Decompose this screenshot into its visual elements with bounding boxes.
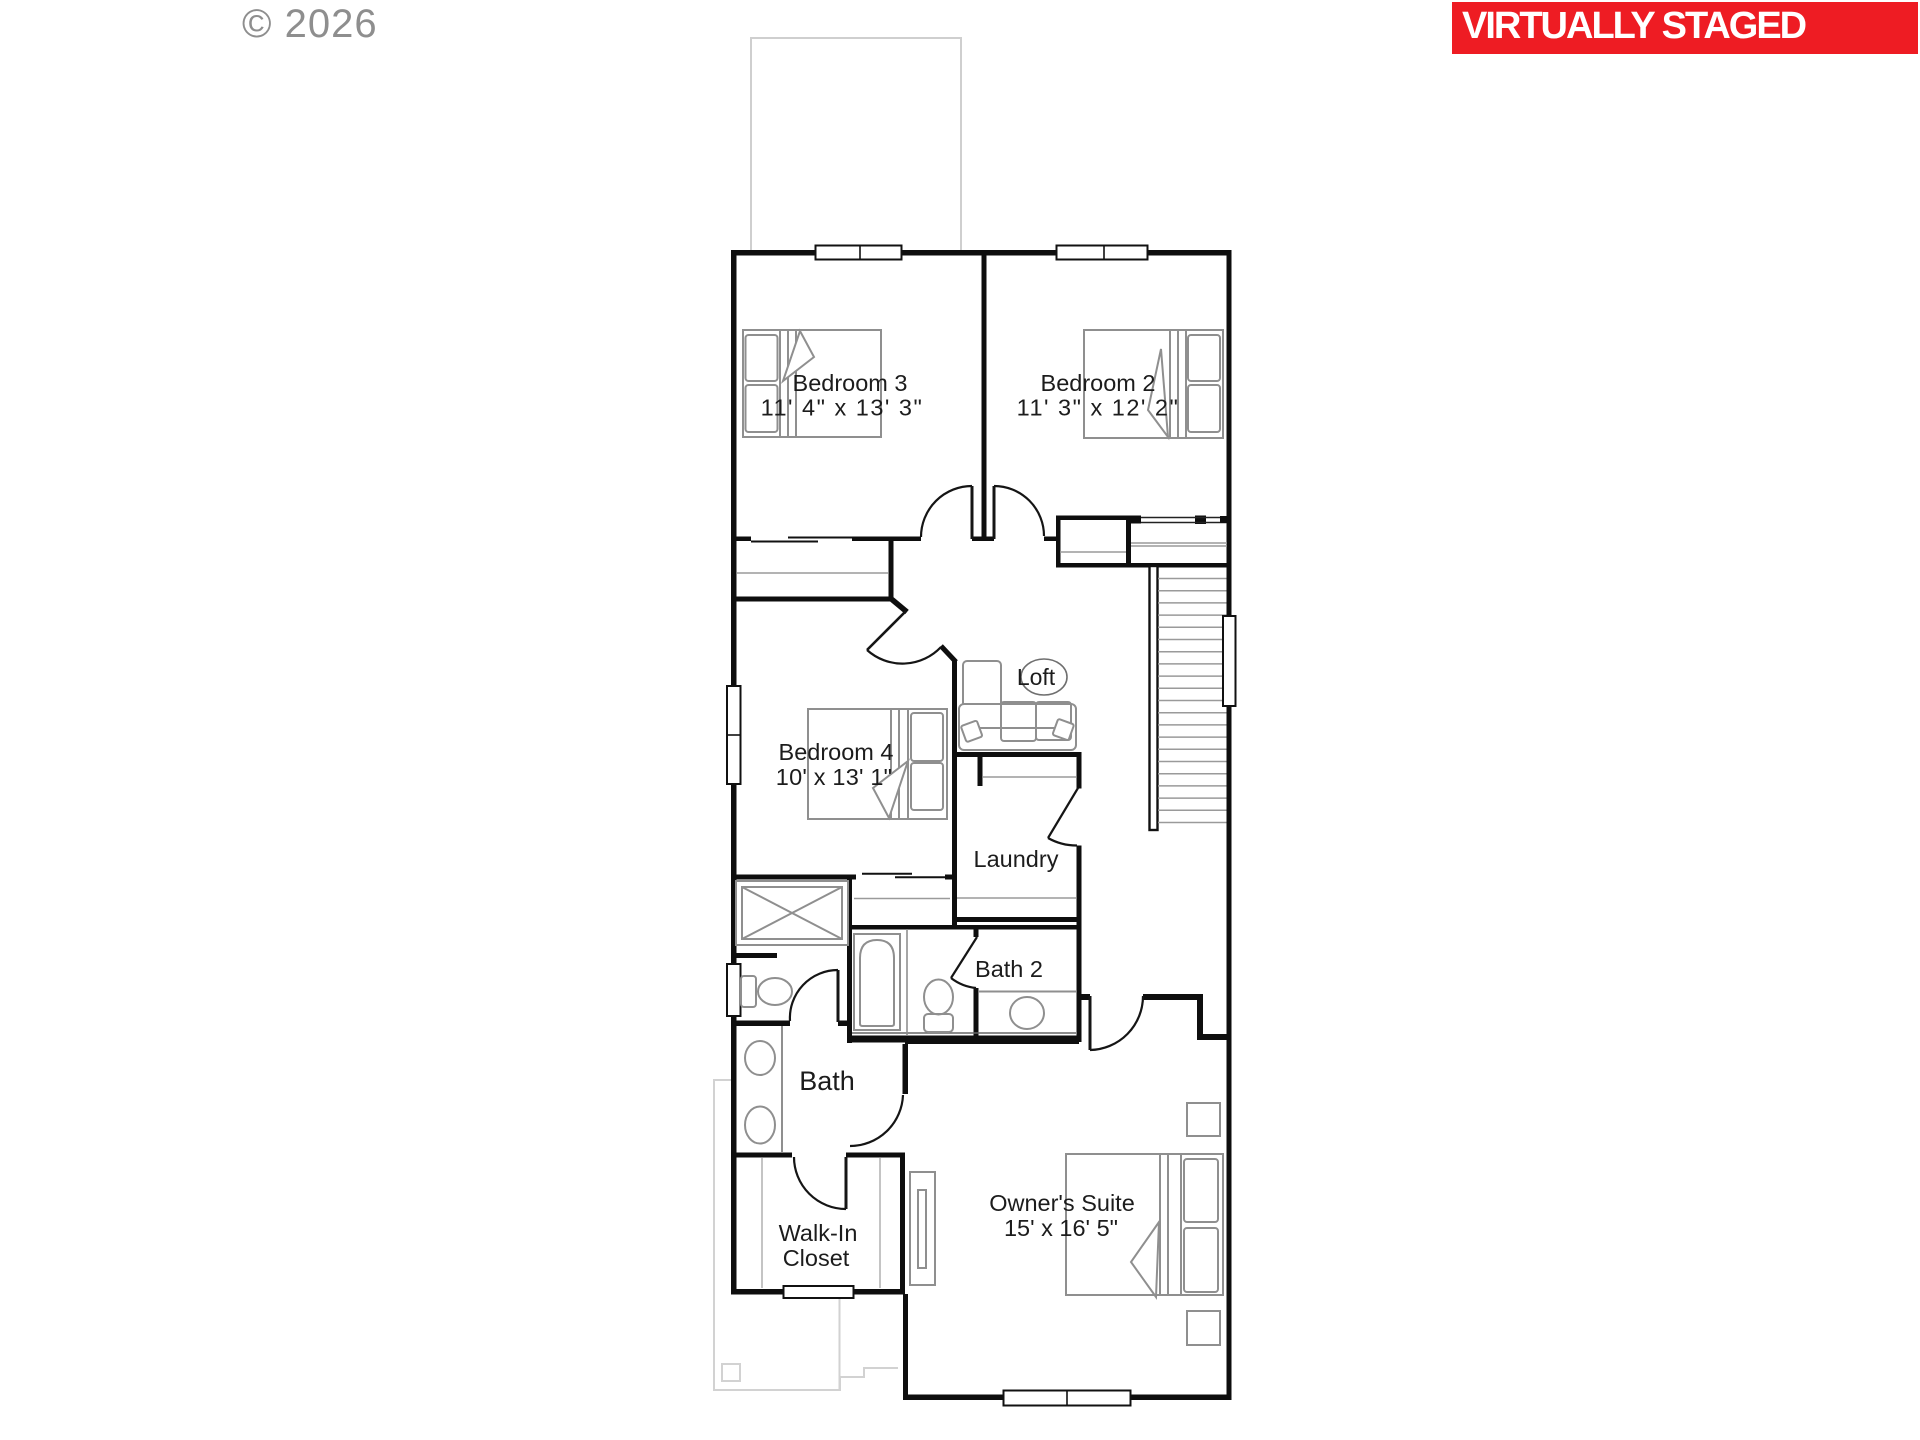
svg-text:Walk-In: Walk-In xyxy=(779,1220,858,1246)
svg-text:Closet: Closet xyxy=(783,1245,850,1271)
svg-text:Bath 2: Bath 2 xyxy=(975,956,1043,982)
svg-text:Laundry: Laundry xyxy=(974,846,1059,872)
svg-text:Bath: Bath xyxy=(799,1066,855,1096)
svg-text:15' x 16' 5": 15' x 16' 5" xyxy=(1004,1215,1118,1241)
svg-text:Loft: Loft xyxy=(1017,664,1056,690)
svg-text:Bedroom 3: Bedroom 3 xyxy=(793,370,908,396)
svg-text:Bedroom 2: Bedroom 2 xyxy=(1041,370,1156,396)
svg-text:11' 4" x 13' 3": 11' 4" x 13' 3" xyxy=(761,395,924,421)
svg-text:Owner's Suite: Owner's Suite xyxy=(989,1190,1135,1216)
svg-text:10' x 13' 1": 10' x 13' 1" xyxy=(776,764,892,790)
svg-text:11' 3" x 12' 2": 11' 3" x 12' 2" xyxy=(1017,395,1180,421)
svg-text:Bedroom 4: Bedroom 4 xyxy=(779,739,894,765)
